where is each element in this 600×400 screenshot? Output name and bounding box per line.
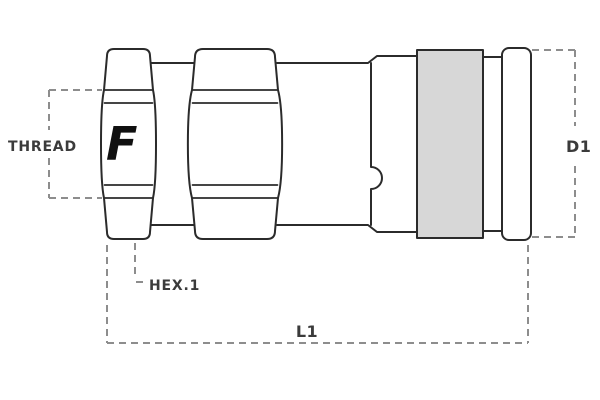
hex-nut-2: [188, 49, 282, 239]
thread-label: THREAD: [8, 139, 77, 155]
coupling-drawing: F THREAD HEX.1 L1 D1: [0, 0, 600, 400]
sleeve-knurled-band: [417, 50, 483, 238]
thread-dimension: THREAD: [8, 90, 102, 198]
brand-logo-letter: F: [106, 117, 137, 171]
hex-label: HEX.1: [149, 278, 200, 294]
hex-dimension: HEX.1: [135, 243, 200, 294]
coupling-body-group: F: [101, 48, 531, 240]
body-cylinder: [277, 56, 418, 232]
length-label: L1: [296, 322, 318, 341]
sleeve-face-notch: [371, 63, 382, 225]
sleeve-groove-ring: [483, 57, 502, 231]
length-dimension: L1: [107, 245, 528, 343]
end-cap: [502, 48, 531, 240]
diameter-label: D1: [566, 137, 591, 156]
technical-drawing-canvas: F THREAD HEX.1 L1 D1: [0, 0, 600, 400]
diameter-dimension: D1: [532, 50, 591, 237]
hex-leader-lines: [135, 243, 146, 282]
